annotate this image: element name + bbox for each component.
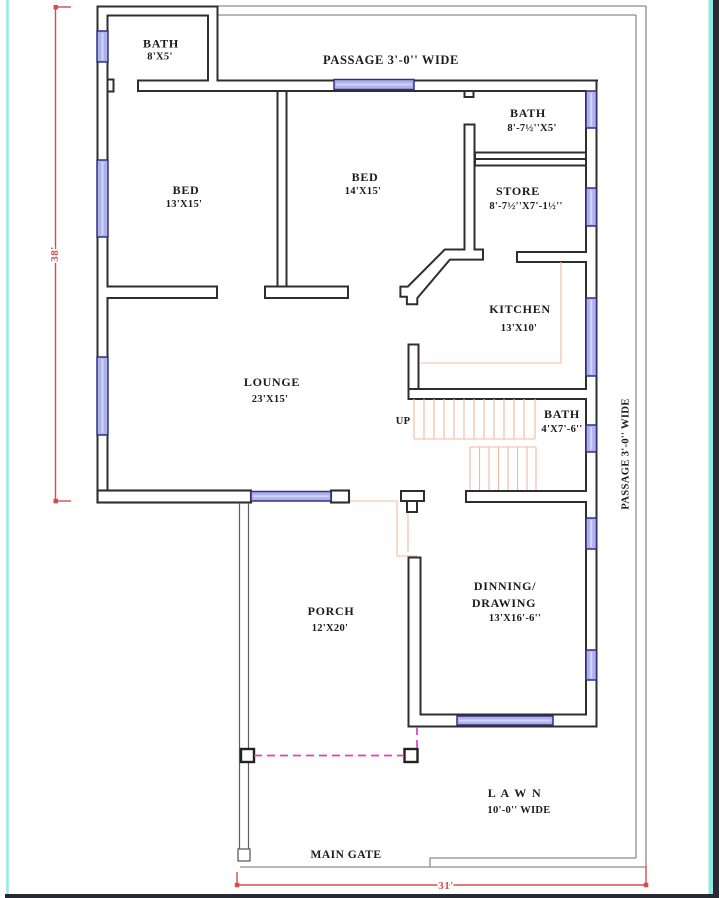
svg-text:STORE: STORE [496,184,540,198]
svg-text:DINNING/: DINNING/ [474,579,536,593]
svg-text:PORCH: PORCH [308,604,355,618]
svg-text:DRAWING: DRAWING [472,596,536,610]
svg-text:KITCHEN: KITCHEN [489,302,551,316]
svg-text:BED: BED [352,170,379,184]
svg-text:13'X16'-6'': 13'X16'-6'' [489,613,541,624]
svg-text:PASSAGE 3'-0'' WIDE: PASSAGE 3'-0'' WIDE [323,53,459,67]
svg-text:8'-7½''X7'-1½'': 8'-7½''X7'-1½'' [489,201,562,212]
svg-text:12'X20': 12'X20' [312,623,349,634]
svg-text:LOUNGE: LOUNGE [244,375,300,389]
svg-text:BATH: BATH [544,407,580,421]
svg-text:31': 31' [438,880,454,892]
svg-text:10'-0'' WIDE: 10'-0'' WIDE [487,805,550,816]
svg-text:13'X10': 13'X10' [501,323,538,334]
svg-text:23'X15': 23'X15' [252,394,289,405]
svg-text:8'-7½''X5': 8'-7½''X5' [507,123,556,134]
svg-text:UP: UP [396,416,411,427]
svg-text:L A W N: L A W N [488,786,542,800]
svg-text:PASSAGE 3'-0'' WIDE: PASSAGE 3'-0'' WIDE [620,398,632,509]
svg-text:4'X7'-6'': 4'X7'-6'' [541,424,582,435]
svg-text:BED: BED [173,183,200,197]
svg-text:13'X15': 13'X15' [166,199,203,210]
svg-text:14'X15': 14'X15' [345,186,382,197]
svg-text:MAIN GATE: MAIN GATE [310,849,381,861]
svg-text:BATH: BATH [510,106,546,120]
svg-text:8'X5': 8'X5' [147,52,172,63]
svg-text:BATH: BATH [143,37,179,51]
svg-text:38': 38' [49,246,61,262]
